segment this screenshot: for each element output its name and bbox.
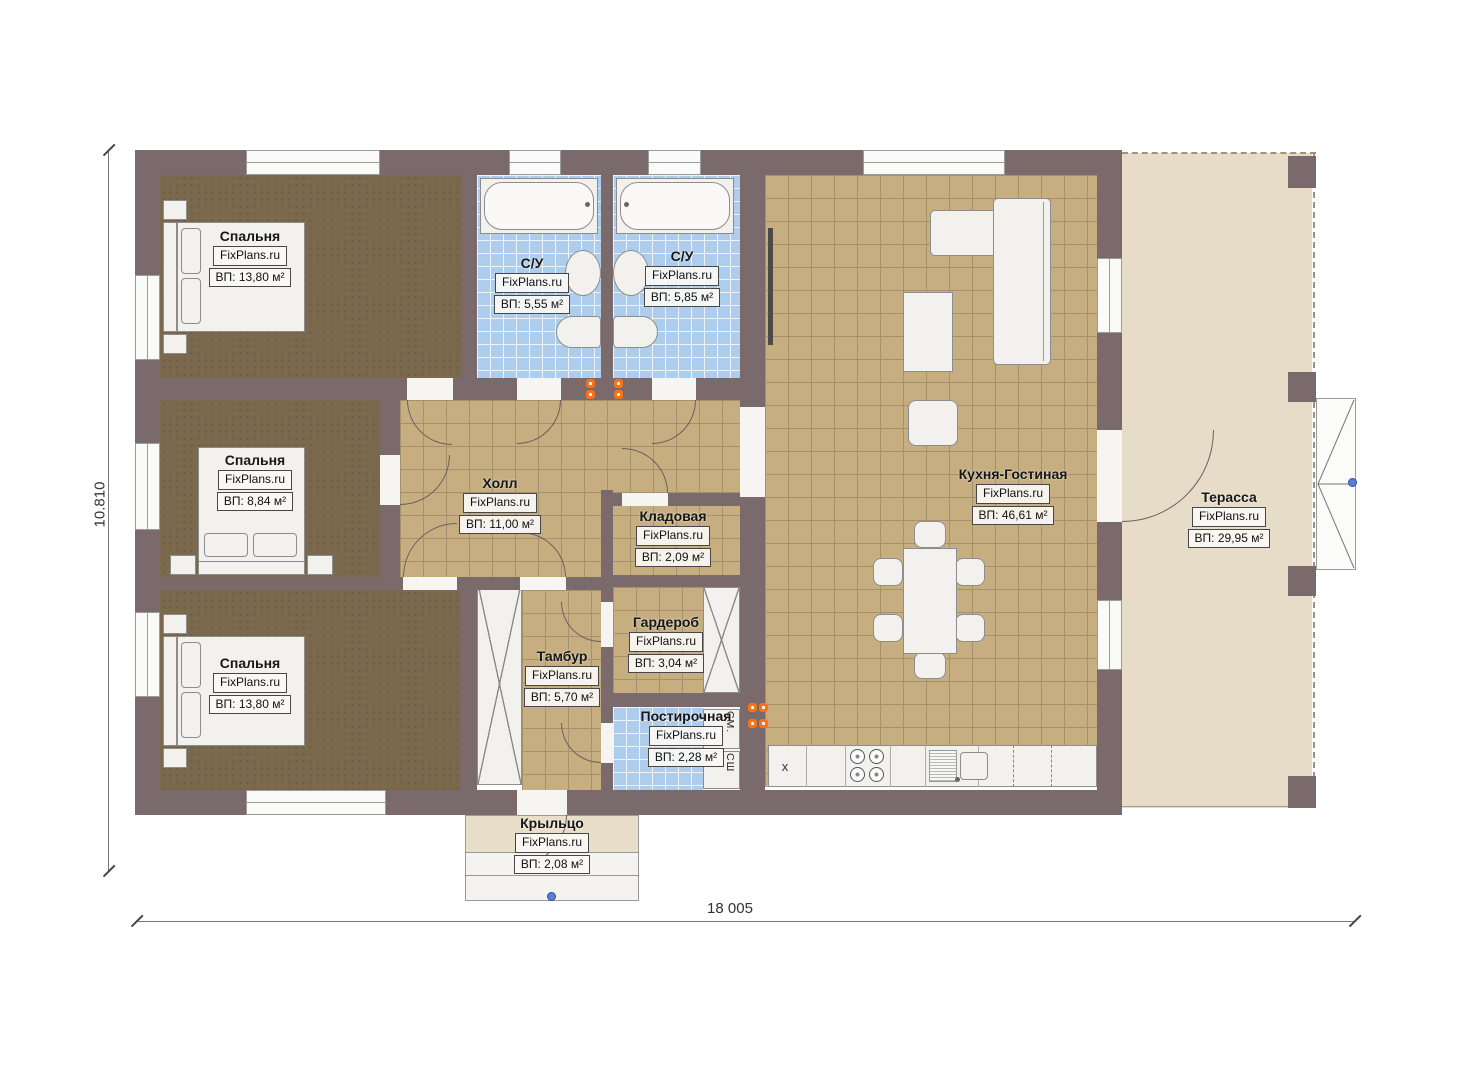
fridge-slot-mark: x bbox=[770, 752, 800, 780]
bed-headboard bbox=[163, 636, 177, 746]
door-opening-bathroom2 bbox=[652, 378, 696, 400]
room-name: Кухня-Гостиная bbox=[959, 466, 1068, 482]
room-label-bathroom2: С/У FixPlans.ru ВП: 5,85 м² bbox=[624, 248, 740, 307]
window-kitchen-right-upper bbox=[1097, 258, 1122, 333]
watermark: FixPlans.ru bbox=[649, 726, 723, 746]
room-name: С/У bbox=[521, 255, 544, 271]
door-opening-storage bbox=[622, 493, 668, 506]
floor-plan: x СМ. СШ Спальня FixPlans.ru ВП: 13,80 м… bbox=[0, 0, 1474, 1080]
room-name: Тамбур bbox=[537, 648, 588, 664]
room-label-bedroom3: Спальня FixPlans.ru ВП: 13,80 м² bbox=[185, 655, 315, 714]
dimension-tick bbox=[103, 144, 115, 156]
room-label-laundry: Постирочная FixPlans.ru ВП: 2,28 м² bbox=[625, 708, 747, 767]
terrace-pillar bbox=[1288, 156, 1316, 188]
room-area: ВП: 5,70 м² bbox=[524, 688, 600, 708]
room-name: Холл bbox=[482, 475, 517, 491]
door-opening-tambour bbox=[520, 577, 566, 590]
dimension-height-label: 10.810 bbox=[92, 463, 109, 547]
terrace-edge-right bbox=[1313, 152, 1315, 808]
bed-headboard bbox=[198, 561, 305, 575]
room-name: Спальня bbox=[225, 452, 285, 468]
door-opening-laundry bbox=[601, 723, 613, 763]
sink-drainboard bbox=[929, 750, 957, 782]
faucet-icon bbox=[585, 202, 590, 207]
room-area: ВП: 46,61 м² bbox=[972, 506, 1055, 526]
counter-divider bbox=[890, 745, 891, 787]
room-area: ВП: 8,84 м² bbox=[217, 492, 293, 512]
room-area: ВП: 11,00 м² bbox=[459, 515, 541, 535]
room-label-kitchen-living: Кухня-Гостиная FixPlans.ru ВП: 46,61 м² bbox=[940, 466, 1086, 525]
dining-chair bbox=[873, 558, 903, 586]
watermark: FixPlans.ru bbox=[525, 666, 599, 686]
door-opening-terrace bbox=[1097, 430, 1122, 522]
marker-dot bbox=[1348, 478, 1357, 487]
nightstand bbox=[163, 200, 187, 220]
room-name: Гардероб bbox=[633, 614, 699, 630]
dining-chair bbox=[955, 558, 985, 586]
window-bedroom1-top bbox=[246, 150, 380, 175]
room-area: ВП: 5,85 м² bbox=[644, 288, 720, 308]
door-opening-bedroom3 bbox=[403, 577, 457, 590]
stove-burner-icon bbox=[869, 749, 884, 764]
door-opening-bathroom1 bbox=[517, 378, 561, 400]
wall-int-kitchen-left-mid bbox=[740, 497, 765, 590]
wall-int-storage-bottom bbox=[601, 575, 740, 587]
room-label-hall: Холл FixPlans.ru ВП: 11,00 м² bbox=[445, 475, 555, 534]
watermark: FixPlans.ru bbox=[645, 266, 719, 286]
pillow bbox=[253, 533, 297, 557]
terrace-pillar bbox=[1288, 776, 1316, 808]
watermark: FixPlans.ru bbox=[636, 526, 710, 546]
room-name: Кладовая bbox=[639, 508, 706, 524]
coffee-table bbox=[903, 292, 953, 372]
room-name: Спальня bbox=[220, 228, 280, 244]
room-label-terrace: Терасса FixPlans.ru ВП: 29,95 м² bbox=[1166, 489, 1292, 548]
counter-divider bbox=[925, 745, 926, 787]
opening-hall-kitchen bbox=[740, 407, 765, 497]
bathtub bbox=[616, 178, 734, 234]
room-label-porch: Крыльцо FixPlans.ru ВП: 2,08 м² bbox=[490, 815, 614, 874]
faucet-icon bbox=[955, 777, 960, 782]
window-bathroom2-top bbox=[648, 150, 701, 175]
toilet bbox=[613, 316, 658, 348]
watermark: FixPlans.ru bbox=[218, 470, 292, 490]
room-name: Спальня bbox=[220, 655, 280, 671]
radiator-icon bbox=[748, 703, 768, 712]
dimension-tick bbox=[103, 865, 115, 877]
room-area: ВП: 13,80 м² bbox=[209, 695, 292, 715]
room-area: ВП: 2,09 м² bbox=[635, 548, 711, 568]
terrace-pillar bbox=[1288, 566, 1316, 596]
stove-burner-icon bbox=[850, 767, 865, 782]
marker-dot bbox=[547, 892, 556, 901]
radiator-icon bbox=[586, 379, 595, 399]
door-opening-bedroom2 bbox=[380, 455, 400, 505]
counter-divider-dashed bbox=[1051, 745, 1052, 787]
room-label-tambour: Тамбур FixPlans.ru ВП: 5,70 м² bbox=[512, 648, 612, 707]
armchair bbox=[908, 400, 958, 446]
nightstand bbox=[163, 334, 187, 354]
nightstand bbox=[170, 555, 196, 575]
sofa-backrest-line bbox=[1043, 202, 1044, 361]
watermark: FixPlans.ru bbox=[1192, 507, 1266, 527]
window-kitchen-top bbox=[863, 150, 1005, 175]
room-area: ВП: 13,80 м² bbox=[209, 268, 292, 288]
room-name: Постирочная bbox=[641, 708, 732, 724]
room-area: ВП: 5,55 м² bbox=[494, 295, 570, 315]
wall-int-bedroom3-tambour bbox=[460, 577, 477, 790]
counter-divider bbox=[845, 745, 846, 787]
wall-int-bath1-bath2 bbox=[601, 175, 613, 378]
radiator-icon bbox=[748, 719, 768, 728]
watermark: FixPlans.ru bbox=[629, 632, 703, 652]
window-bedroom1-left bbox=[135, 275, 160, 360]
room-area: ВП: 2,28 м² bbox=[648, 748, 724, 768]
window-bathroom1-top bbox=[509, 150, 561, 175]
watermark: FixPlans.ru bbox=[495, 273, 569, 293]
stove-burner-icon bbox=[850, 749, 865, 764]
watermark: FixPlans.ru bbox=[213, 246, 287, 266]
door-opening-bedroom1 bbox=[407, 378, 453, 400]
terrace-pillar bbox=[1288, 372, 1316, 402]
room-area: ВП: 3,04 м² bbox=[628, 654, 704, 674]
room-area: ВП: 29,95 м² bbox=[1188, 529, 1271, 549]
stove-burner-icon bbox=[869, 767, 884, 782]
pillow bbox=[204, 533, 248, 557]
dimension-line-horizontal bbox=[137, 921, 1355, 922]
room-label-bedroom1: Спальня FixPlans.ru ВП: 13,80 м² bbox=[185, 228, 315, 287]
terrace-edge-bottom bbox=[1122, 806, 1314, 807]
radiator-icon bbox=[614, 379, 623, 399]
nightstand bbox=[163, 748, 187, 768]
faucet-icon bbox=[624, 202, 629, 207]
room-name: Крыльцо bbox=[520, 815, 584, 831]
watermark: FixPlans.ru bbox=[213, 673, 287, 693]
wall-int-kitchen-left-upper bbox=[740, 175, 765, 407]
door-opening-entrance bbox=[517, 790, 567, 815]
porch-step-edge bbox=[465, 875, 639, 876]
nightstand bbox=[307, 555, 333, 575]
room-name: Терасса bbox=[1201, 489, 1257, 505]
nightstand bbox=[163, 614, 187, 634]
wall-int-wardrobe-bottom bbox=[601, 693, 740, 707]
room-label-bedroom2: Спальня FixPlans.ru ВП: 8,84 м² bbox=[190, 452, 320, 511]
bathtub bbox=[480, 178, 598, 234]
room-name: С/У bbox=[671, 248, 694, 264]
room-area: ВП: 2,08 м² bbox=[514, 855, 590, 875]
watermark: FixPlans.ru bbox=[463, 493, 537, 513]
room-label-wardrobe: Гардероб FixPlans.ru ВП: 3,04 м² bbox=[607, 614, 725, 673]
dining-chair bbox=[914, 652, 946, 679]
window-bedroom3-bottom bbox=[246, 790, 386, 815]
bed-headboard bbox=[163, 222, 177, 332]
counter-divider bbox=[806, 745, 807, 787]
tv bbox=[768, 228, 773, 345]
toilet bbox=[556, 316, 601, 348]
dimension-width-label: 18 005 bbox=[670, 900, 790, 917]
kitchen-sink bbox=[960, 752, 988, 780]
dining-chair bbox=[955, 614, 985, 642]
window-bedroom3-left bbox=[135, 612, 160, 697]
window-kitchen-right-lower bbox=[1097, 600, 1122, 670]
dining-table bbox=[903, 548, 957, 654]
dining-chair bbox=[873, 614, 903, 642]
room-label-bathroom1: С/У FixPlans.ru ВП: 5,55 м² bbox=[474, 255, 590, 314]
window-bedroom2-left bbox=[135, 443, 160, 530]
counter-divider-dashed bbox=[1013, 745, 1014, 787]
watermark: FixPlans.ru bbox=[976, 484, 1050, 504]
room-label-storage: Кладовая FixPlans.ru ВП: 2,09 м² bbox=[614, 508, 732, 567]
terrace-edge-top bbox=[1122, 152, 1316, 154]
watermark: FixPlans.ru bbox=[515, 833, 589, 853]
